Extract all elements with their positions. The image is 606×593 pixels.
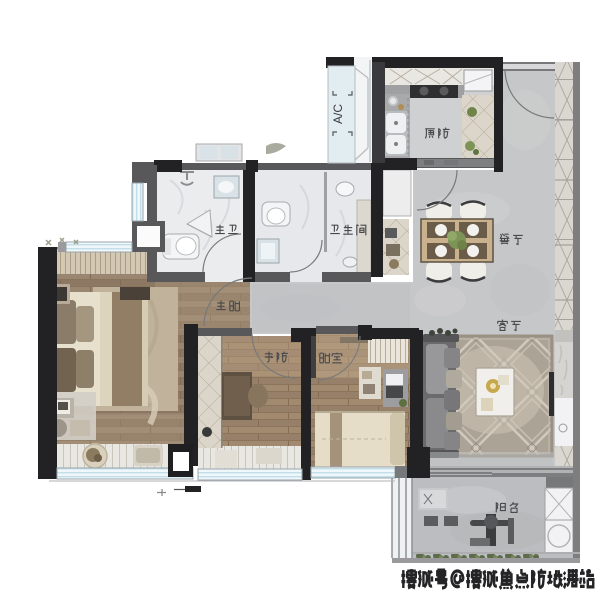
svg-text:A/C: A/C (331, 104, 345, 124)
